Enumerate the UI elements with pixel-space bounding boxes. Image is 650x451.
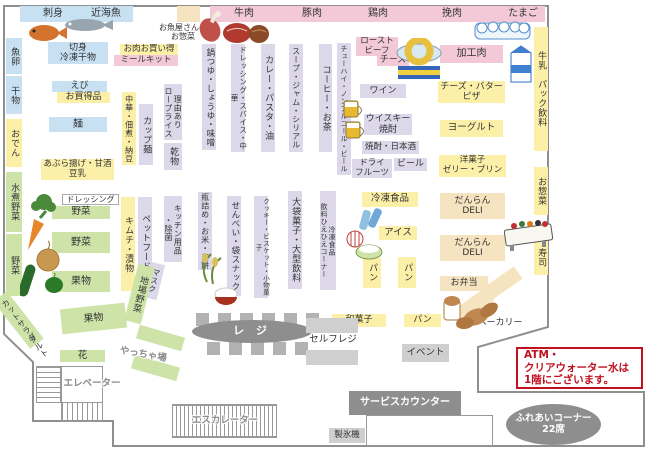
zone-register: レ ジ xyxy=(192,320,312,343)
zone-wine: ワイン xyxy=(360,84,406,98)
zone-kirimi: 切身 冷凍干物 xyxy=(48,42,108,64)
vegetables-illustration xyxy=(20,192,68,297)
label-self-checkout: セルフレジ xyxy=(303,334,363,347)
dept-butaniku: 豚肉 xyxy=(290,7,334,21)
aisle-kimchi: キムチ・漬物 xyxy=(121,197,135,291)
zone-ebi: えび xyxy=(52,81,107,92)
zone-service-counter: サービスカウンター xyxy=(349,391,461,415)
zone-shochu-nihonshu: 焼酎・日本酒 xyxy=(362,141,419,154)
aisle-riyuari: 理由あり ロープライス xyxy=(164,84,182,140)
service-counter-desk xyxy=(366,415,493,446)
aisle-kitchen: キッチン用品 ・除菌 xyxy=(164,196,182,262)
atm-notice: ATM・ クリアウォーター水は 1階にございます。 xyxy=(516,347,643,389)
rice-illustration xyxy=(193,252,238,307)
checkout-lane xyxy=(207,342,220,355)
self-checkout-block-1 xyxy=(306,318,358,333)
self-checkout-block-2 xyxy=(306,350,358,365)
zone-ice-machine: 製氷機 xyxy=(329,428,365,443)
aisle-coffee-tea: コーヒー・お茶 xyxy=(319,44,332,152)
zone-pan-1: パン xyxy=(363,257,381,288)
milk-illustration xyxy=(507,42,535,84)
dept-toriniku: 鶏肉 xyxy=(356,7,400,21)
aisle-obukuro: 大袋菓子・大型飲料 xyxy=(288,191,302,289)
zone-gyoran: 魚卵 xyxy=(6,38,22,74)
label-escalator: エスカレーター xyxy=(180,414,270,428)
checkout-lane xyxy=(229,342,242,355)
meat-illustration xyxy=(195,10,270,44)
zone-aburaage: あぶら揚げ・甘酒 豆乳 xyxy=(41,159,114,180)
fish-illustration xyxy=(22,14,117,44)
bread-illustration xyxy=(442,292,504,334)
aisle-dressing-spice: ドレッシング・スパイス・中華 xyxy=(231,44,245,152)
checkout-lane xyxy=(273,342,286,355)
zone-event: イベント xyxy=(402,344,449,362)
store-map: 刺身 近海魚 牛肉 豚肉 鶏肉 挽肉 たまご お魚屋さんの お惣菜 魚卵 干物 … xyxy=(0,0,650,451)
zone-kakoniku: 加工肉 xyxy=(440,45,503,63)
zone-cheese-butter: チーズ・バター ピザ xyxy=(438,81,505,103)
zone-himono: 干物 xyxy=(6,76,22,114)
zone-beer: ビール xyxy=(394,158,427,171)
ice-cream-illustration xyxy=(345,208,385,260)
zone-hana: 花 xyxy=(60,350,105,362)
zone-dressing: ドレッシング xyxy=(62,194,119,205)
beer-mugs-illustration xyxy=(340,98,368,143)
zone-danran-deli-2: だんらん DELI xyxy=(440,235,505,261)
zone-osozai: お惣菜 xyxy=(534,167,548,215)
stairs-bottom xyxy=(61,402,103,422)
zone-okaidokuhin: お買得品 xyxy=(57,92,110,103)
dept-hikiniku: 挽肉 xyxy=(430,7,474,21)
zone-yogurt: ヨーグルト xyxy=(440,120,503,137)
aisle-curry-pasta: カレー・パスタ・油 xyxy=(261,44,275,152)
zone-whisky: ウイスキー 焼酎 xyxy=(364,114,412,135)
zone-danran-deli-1: だんらん DELI xyxy=(440,193,505,219)
aisle-cup-men: カップ麺 xyxy=(139,104,153,165)
zone-oden: おでん xyxy=(6,119,22,167)
zone-dry-fruits: ドライ フルーツ xyxy=(352,159,392,178)
zone-gyunyu-pack: 牛乳 パック飲料 xyxy=(534,27,548,151)
zone-pan-2: パン xyxy=(398,257,416,288)
sushi-platter-illustration xyxy=(502,215,558,255)
aisle-chuka-tsukudani: 中華・佃煮・納豆 xyxy=(122,92,136,165)
aisle-soup-jam: スープ・ジャム・シリアル xyxy=(289,44,303,152)
cheese-pizza-illustration xyxy=(392,38,447,83)
aisle-cookie: クッキー・ビスケット・小物菓子 xyxy=(254,196,268,298)
zone-oniku-okaidoku: お肉お買い得 xyxy=(120,44,178,55)
zone-pan-bottom: パン xyxy=(404,314,441,327)
eggs-illustration xyxy=(474,18,532,42)
zone-yogashi: 洋菓子 ゼリー・プリン xyxy=(439,155,506,177)
zone-meal-kit: ミールキット xyxy=(114,55,178,66)
label-elevator: エレベーター xyxy=(56,378,128,390)
zone-reito-shokuhin: 冷凍食品 xyxy=(362,192,418,207)
aisle-reito-hiehie: 冷凍食品 飲料ひえひえコーナー xyxy=(320,191,336,290)
zone-men: 麺 xyxy=(49,117,107,132)
zone-fureai-corner: ふれあいコーナー 22席 xyxy=(506,404,601,445)
checkout-lane xyxy=(251,342,264,355)
aisle-kanbutsu: 乾物 xyxy=(164,143,182,170)
aisle-nabetsuyu: 鍋つゆ・しょうゆ・味噌 xyxy=(202,44,216,150)
